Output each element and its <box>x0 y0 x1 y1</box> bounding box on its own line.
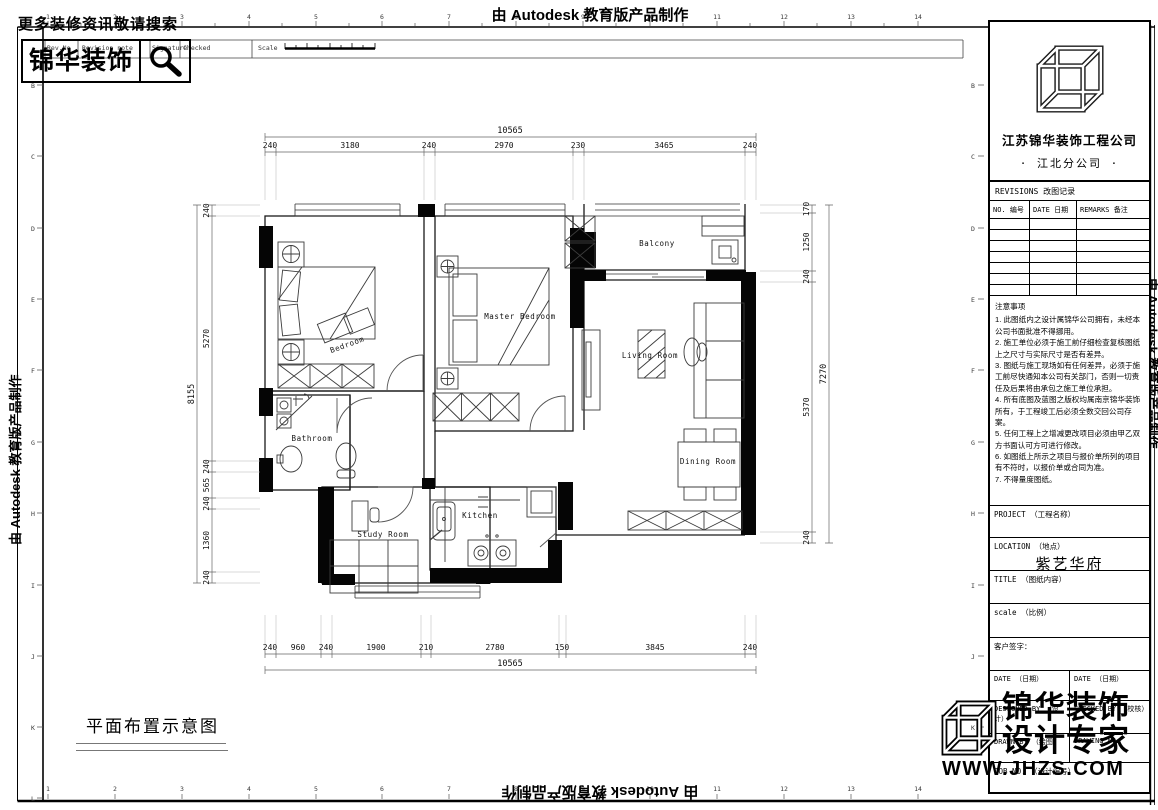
grid-col: 5 <box>314 13 318 21</box>
grid-col: 3 <box>180 13 184 21</box>
promo-tagline: 更多装修资讯敬请搜索 <box>18 13 178 34</box>
dim: 210 <box>419 643 434 652</box>
room-label-kitchen: Kitchen <box>462 511 498 520</box>
dim: 170 <box>802 202 811 217</box>
watermark-logo: 锦华装饰 设计专家 WWW.JHZS.COM <box>938 692 1152 792</box>
project-field: PROJECT （工程名称） <box>990 506 1149 538</box>
note-item: 6. 如图纸上所示之项目与报价单所列的项目有不符时，以报价单或合同为准。 <box>995 451 1144 474</box>
dim: 150 <box>555 643 570 652</box>
room-labels: Bedroom Master Bedroom Balcony Living Ro… <box>292 239 737 539</box>
grid-col: 14 <box>914 13 922 21</box>
dim: 960 <box>291 643 306 652</box>
grid-col: 7 <box>447 13 451 21</box>
dim: 3180 <box>340 141 359 150</box>
grid-col: 4 <box>247 785 251 793</box>
rev-row <box>990 285 1149 296</box>
rev-row <box>990 263 1149 274</box>
grid-row: C <box>971 153 975 161</box>
autodesk-banner-left: 由 Autodesk 教育版产品制作 <box>5 295 24 545</box>
drawing-canvas: 1 2 3 4 5 6 7 8 9 10 11 12 13 14 1 2 3 4… <box>0 0 1158 810</box>
grid-row: D <box>971 225 975 233</box>
grid-col: 13 <box>847 785 855 793</box>
dim: 230 <box>571 141 586 150</box>
grid-row: I <box>971 582 975 590</box>
dim-bottom-total: 10565 <box>497 659 523 669</box>
grid-col: 4 <box>247 13 251 21</box>
note-item: 5. 任何工程上之增减更改项目必须由甲乙双方书面认可方可进行修改。 <box>995 428 1144 451</box>
title-block: 江苏锦华装饰工程公司 · 江北分公司 · REVISIONS 改图记录 NO. … <box>988 20 1151 794</box>
grid-row: C <box>31 153 35 161</box>
rev-row <box>990 241 1149 252</box>
master-bedroom-furniture <box>433 256 549 421</box>
grid-col: 1 <box>46 785 50 793</box>
living-room-furniture <box>582 303 744 418</box>
grid-row: K <box>31 724 35 732</box>
dim: 240 <box>263 141 278 150</box>
dim: 240 <box>202 459 211 474</box>
scale-label: scale （比例） <box>990 604 1149 618</box>
note-item: 2. 施工单位必须于施工前仔细检查复核图纸上之尺寸与实际尺寸是否有差异。 <box>995 337 1144 360</box>
scale-bar <box>285 43 375 49</box>
dim: 240 <box>202 496 211 511</box>
autodesk-banner-bottom: 由 Autodesk 教育版产品制作 <box>480 782 720 803</box>
grid-row: G <box>31 439 35 447</box>
dim: 240 <box>422 141 437 150</box>
company-name: 江苏锦华装饰工程公司 <box>990 130 1149 149</box>
grid-row: I <box>31 582 35 590</box>
cad-drawing-page: 1 2 3 4 5 6 7 8 9 10 11 12 13 14 1 2 3 4… <box>0 0 1158 810</box>
dim: 240 <box>319 643 334 652</box>
grid-letters-right: B C D E F G H I J K <box>971 82 975 732</box>
client-sign-label: 客户签字： <box>990 638 1149 652</box>
grid-row: E <box>971 296 975 304</box>
grid-row: H <box>971 510 975 518</box>
caption-underline-2 <box>76 750 228 751</box>
dim: 240 <box>802 269 811 284</box>
company-branch: · 江北分公司 · <box>990 155 1149 171</box>
dim: 240 <box>743 141 758 150</box>
dim: 2780 <box>485 643 504 652</box>
grid-col: 2 <box>113 785 117 793</box>
dim: 3845 <box>645 643 664 652</box>
dimension-lines <box>193 133 833 674</box>
dim: 5370 <box>802 397 811 416</box>
grid-row: F <box>31 367 35 375</box>
grid-col: 5 <box>314 785 318 793</box>
project-label: PROJECT （工程名称） <box>990 506 1149 520</box>
watermark-cube-icon <box>938 692 1000 764</box>
note-item: 7. 不得量度图纸。 <box>995 474 1144 485</box>
note-item: 4. 所有底图及蓝图之版权均属南京锦华装饰所有，于工程竣工后必须全数交回公司存案… <box>995 394 1144 428</box>
rev-row <box>990 230 1149 241</box>
grid-row: B <box>31 82 35 90</box>
grid-col: 7 <box>447 785 451 793</box>
room-label-living-room: Living Room <box>622 351 678 360</box>
dim: 240 <box>202 570 211 585</box>
revisions-header-row: NO. 编号 DATE 日期 REMARKS 备注 <box>990 201 1149 219</box>
brand-search-box: 锦华装饰 <box>21 39 191 83</box>
company-panel: 江苏锦华装饰工程公司 · 江北分公司 · <box>990 22 1149 182</box>
dim-right-total: 7270 <box>819 364 829 384</box>
note-item: 3. 图纸与施工现场如有任何差异，必须于施工前尽快通知本公司有关部门，否则一切责… <box>995 360 1144 394</box>
room-label-bathroom: Bathroom <box>292 434 333 443</box>
grid-row: H <box>31 510 35 518</box>
grid-col: 12 <box>780 785 788 793</box>
room-label-dining-room: Dining Room <box>680 457 736 466</box>
watermark-line1: 锦华装饰 <box>1002 692 1152 725</box>
caption-underline <box>76 743 226 744</box>
location-field: LOCATION （地点） 紫艺华府 <box>990 538 1149 571</box>
note-item: 1. 此图纸内之设计属锦华公司拥有，未经本公司书面批准不得挪用。 <box>995 314 1144 337</box>
rev-row <box>990 252 1149 263</box>
autodesk-banner-top: 由 Autodesk 教育版产品制作 <box>470 4 710 25</box>
search-icon-cell <box>139 41 189 81</box>
rev-row <box>990 219 1149 230</box>
grid-col: 14 <box>914 785 922 793</box>
title-label: TITLE （图纸内容） <box>990 571 1149 585</box>
rev-col-no: NO. 编号 <box>990 201 1030 218</box>
dim: 240 <box>802 530 811 545</box>
strip-scale-label: Scale <box>258 44 278 52</box>
rev-col-date: DATE 日期 <box>1030 201 1077 218</box>
dimension-texts: 10565 240 3180 240 2970 230 3465 240 240… <box>187 126 829 669</box>
dining-room-furniture <box>628 429 742 530</box>
rev-col-remarks: REMARKS 备注 <box>1077 201 1149 218</box>
room-label-bedroom: Bedroom <box>329 334 366 355</box>
dim: 240 <box>202 203 211 218</box>
grid-row: J <box>971 653 975 661</box>
dim: 1250 <box>802 232 811 251</box>
grid-letters-left: B C D E F G H I J K L <box>31 82 35 803</box>
revisions-title: REVISIONS 改图记录 <box>990 182 1149 201</box>
company-cube-logo <box>1031 38 1109 120</box>
grid-row: G <box>971 439 975 447</box>
location-label: LOCATION （地点） <box>990 538 1149 552</box>
dim: 1360 <box>202 531 211 550</box>
grid-col: 11 <box>713 13 721 21</box>
grid-col: 3 <box>180 785 184 793</box>
dim: 240 <box>263 643 278 652</box>
notes-title: 注意事项 <box>995 301 1144 312</box>
scale-field: scale （比例） <box>990 604 1149 638</box>
notes-panel: 注意事项 1. 此图纸内之设计属锦华公司拥有，未经本公司书面批准不得挪用。 2.… <box>990 296 1149 506</box>
watermark-url: WWW.JHZS.COM <box>942 758 1152 781</box>
rev-row <box>990 274 1149 285</box>
magnifier-icon <box>145 43 185 79</box>
room-label-study-room: Study Room <box>357 530 408 539</box>
watermark-text: 锦华装饰 设计专家 WWW.JHZS.COM <box>1000 692 1152 781</box>
grid-row: B <box>971 82 975 90</box>
dim: 240 <box>743 643 758 652</box>
dim: 2970 <box>494 141 513 150</box>
dim: 3465 <box>654 141 673 150</box>
dim-top-total: 10565 <box>497 126 523 136</box>
brand-name: 锦华装饰 <box>23 49 139 74</box>
dim: 565 <box>202 478 211 493</box>
grid-row: F <box>971 367 975 375</box>
kitchen-furniture <box>430 487 556 566</box>
revisions-table: NO. 编号 DATE 日期 REMARKS 备注 <box>990 201 1149 296</box>
dim: 5270 <box>202 329 211 348</box>
grid-ticks <box>37 21 984 799</box>
grid-col: 12 <box>780 13 788 21</box>
grid-col: 6 <box>380 785 384 793</box>
grid-col: 13 <box>847 13 855 21</box>
grid-row: E <box>31 296 35 304</box>
grid-row: D <box>31 225 35 233</box>
client-sign-field: 客户签字： <box>990 638 1149 671</box>
sheet-frame <box>18 25 1156 805</box>
drawing-caption: 平面布置示意图 <box>86 712 219 737</box>
dim: 1900 <box>366 643 385 652</box>
title-field: TITLE （图纸内容） <box>990 571 1149 604</box>
watermark-line2: 设计专家 <box>1002 725 1152 758</box>
grid-row: J <box>31 653 35 661</box>
room-label-balcony: Balcony <box>639 239 675 248</box>
grid-col: 6 <box>380 13 384 21</box>
room-label-master-bedroom: Master Bedroom <box>484 312 556 321</box>
grid-row: L <box>31 795 35 803</box>
furniture <box>276 216 744 593</box>
dim-left-total: 8155 <box>187 384 197 404</box>
bedroom-furniture <box>278 242 375 388</box>
